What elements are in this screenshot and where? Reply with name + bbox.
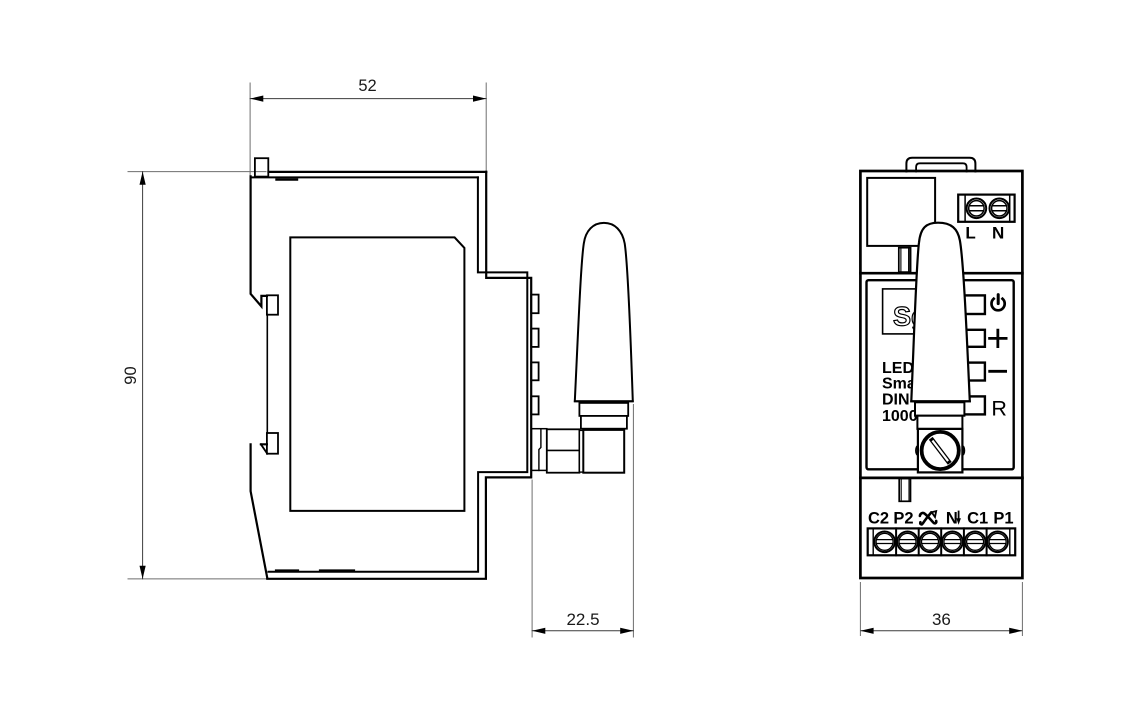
svg-text:DIN: DIN: [882, 391, 910, 408]
svg-text:C1: C1: [967, 509, 988, 527]
svg-text:P1: P1: [993, 509, 1013, 527]
svg-text:22.5: 22.5: [566, 610, 599, 629]
svg-text:C2: C2: [868, 509, 889, 527]
svg-text:R: R: [991, 396, 1007, 420]
svg-text:N: N: [946, 509, 958, 527]
svg-text:52: 52: [358, 77, 376, 95]
svg-text:P2: P2: [893, 509, 913, 527]
svg-text:N: N: [992, 224, 1004, 243]
svg-text:36: 36: [932, 610, 951, 629]
svg-text:90: 90: [122, 366, 140, 384]
svg-text:L: L: [965, 224, 975, 243]
